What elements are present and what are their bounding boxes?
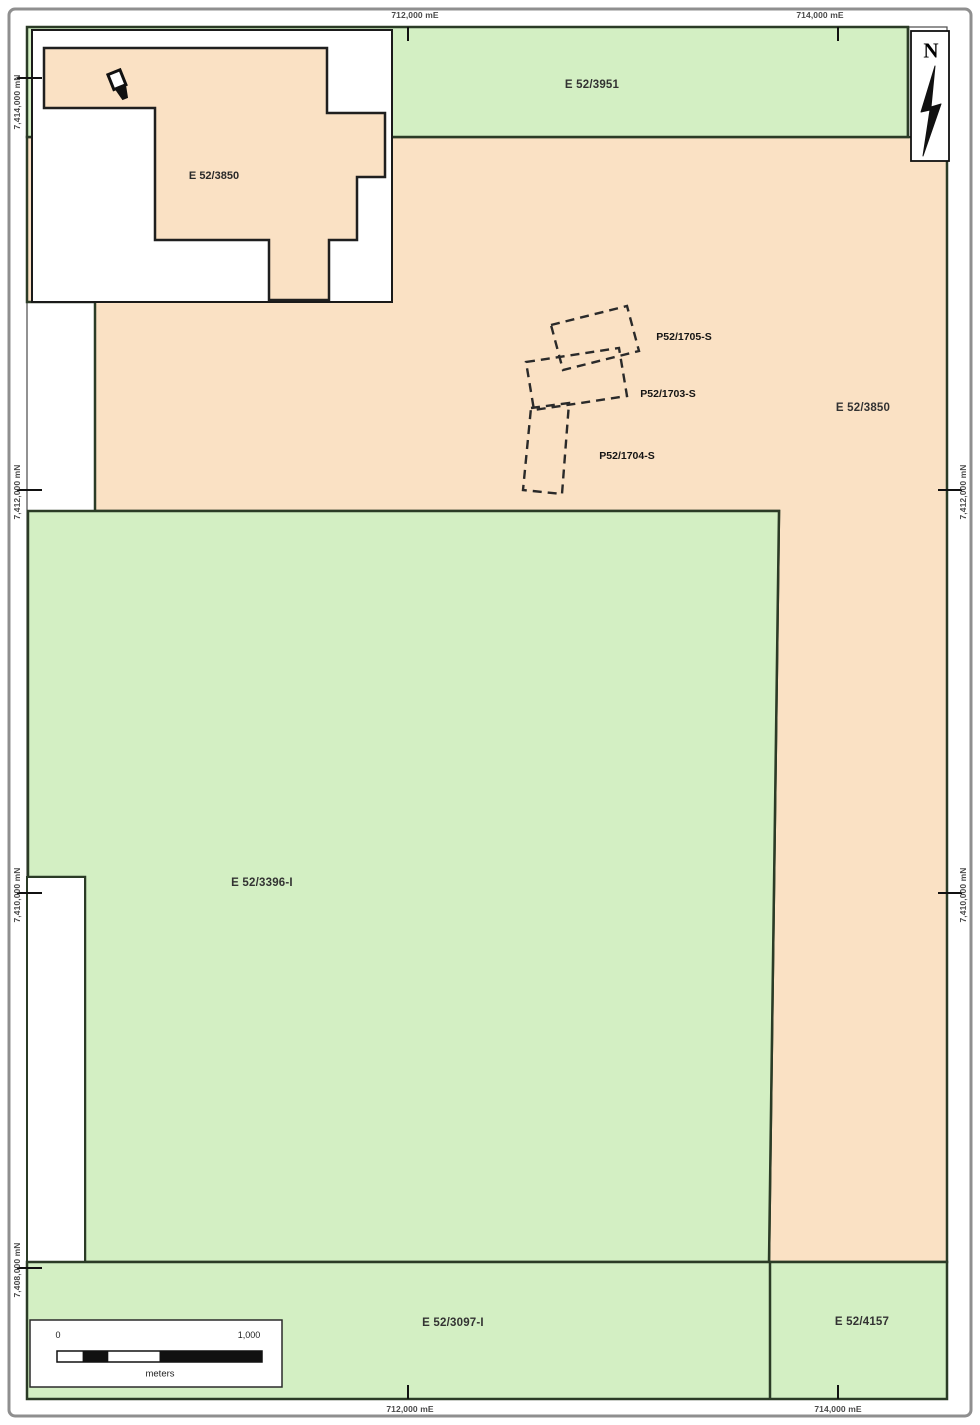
easting-label-bottom-right: 714,000 mE: [814, 1404, 861, 1414]
northing-label-left-4: 7,408,000 mN: [12, 1242, 22, 1297]
tenement-label-e52-3097: E 52/3097-I: [422, 1317, 484, 1329]
easting-label-top-left: 712,000 mE: [391, 10, 438, 20]
scalebar-zero-label: 0: [55, 1330, 60, 1340]
map-canvas: [0, 0, 980, 1425]
prospect-label-p52-1705: P52/1705-S: [656, 331, 711, 343]
easting-label-bottom-left: 712,000 mE: [386, 1404, 433, 1414]
prospect-label-p52-1703: P52/1703-S: [640, 388, 695, 400]
scalebar-max-label: 1,000: [238, 1330, 261, 1340]
north-label: N: [923, 39, 938, 64]
scalebar-segment: [160, 1351, 263, 1362]
scalebar-unit-label: meters: [145, 1369, 174, 1380]
left-white-notch: [27, 877, 85, 1262]
scalebar-segment: [83, 1351, 109, 1362]
tenement-label-e52-3850: E 52/3850: [836, 402, 890, 414]
tenement-label-e52-3951: E 52/3951: [565, 79, 619, 91]
northing-label-left-1: 7,414,000 mN: [12, 74, 22, 129]
prospect-label-p52-1704: P52/1704-S: [599, 450, 654, 462]
northing-label-right-2: 7,410,000 mN: [958, 867, 968, 922]
northing-label-left-2: 7,412,000 mN: [12, 464, 22, 519]
inset-tenement-label: E 52/3850: [189, 170, 239, 182]
tenement-e52-3396-area: [28, 511, 779, 1262]
tenement-label-e52-4157: E 52/4157: [835, 1316, 889, 1328]
northing-label-left-3: 7,410,000 mN: [12, 867, 22, 922]
tenement-label-e52-3396: E 52/3396-I: [231, 877, 293, 889]
northing-label-right-1: 7,412,000 mN: [958, 464, 968, 519]
tenement-map-page: E 52/3951 E 52/3850 E 52/3396-I E 52/309…: [0, 0, 980, 1425]
easting-label-top-right: 714,000 mE: [796, 10, 843, 20]
